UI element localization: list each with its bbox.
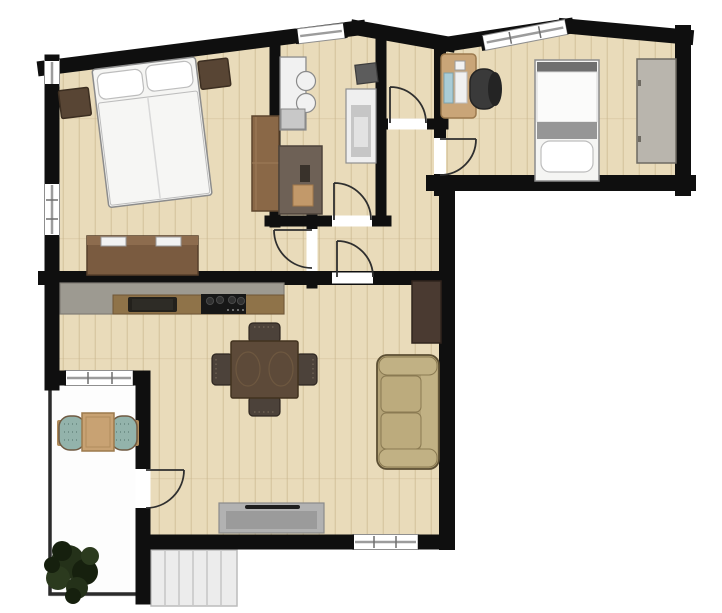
burner <box>206 297 213 304</box>
sofa-armrest-north <box>379 357 437 375</box>
dining-chair-south <box>249 396 280 416</box>
bistro-table <box>82 413 114 451</box>
dresser <box>87 236 198 275</box>
shower <box>346 89 376 163</box>
burner <box>237 297 244 304</box>
burner <box>228 296 235 303</box>
floor-plan-page <box>0 0 722 613</box>
dresser-item-left <box>101 237 126 246</box>
nightstand-left <box>58 87 91 118</box>
dining-table <box>231 341 298 398</box>
bath-mat <box>293 185 313 206</box>
pillow-right <box>145 61 194 92</box>
dresser-item-right <box>156 237 181 246</box>
burner <box>216 296 223 303</box>
office-chair-back <box>488 72 502 106</box>
window-bedroom-left <box>45 181 60 238</box>
cooktop <box>201 294 246 314</box>
sofa-armrest-south <box>379 449 437 467</box>
kitchen-sink-basin <box>132 299 173 310</box>
window-bedroom-corner <box>45 58 60 87</box>
pillow-left <box>97 69 145 100</box>
dining-chair-east <box>296 354 317 385</box>
floor-plan-canvas <box>0 0 722 613</box>
pillow <box>541 141 593 172</box>
headboard <box>537 62 597 72</box>
balcony-chair-left <box>57 416 85 450</box>
sofa-cushion-top <box>381 376 421 412</box>
desk-item-small <box>455 61 465 70</box>
kitchen <box>60 283 284 314</box>
office-wardrobe <box>637 59 676 163</box>
wall-cabinet <box>355 63 378 84</box>
nightstand-right <box>198 58 231 89</box>
desk-item-pad <box>455 72 467 103</box>
balcony-chair-right <box>111 416 139 450</box>
bathroom-cabinet <box>279 146 322 214</box>
dining-chair-west <box>212 354 233 385</box>
sheet <box>537 72 597 122</box>
cabinet-item <box>300 165 310 182</box>
dining-chair-north <box>249 323 280 343</box>
single-bed <box>535 60 599 181</box>
window-living-bottom <box>351 535 421 550</box>
sideboard <box>219 503 324 533</box>
sideboard-handle <box>245 505 300 509</box>
sofa <box>377 355 439 469</box>
desk-item-blue <box>444 73 453 103</box>
bedroom-wardrobe <box>252 116 279 211</box>
exterior-stairs <box>151 550 237 606</box>
tv-board <box>412 281 441 343</box>
basin-top <box>297 72 316 91</box>
blanket <box>537 122 597 139</box>
window-balcony <box>63 371 136 386</box>
sofa-cushion-bottom <box>381 413 421 449</box>
